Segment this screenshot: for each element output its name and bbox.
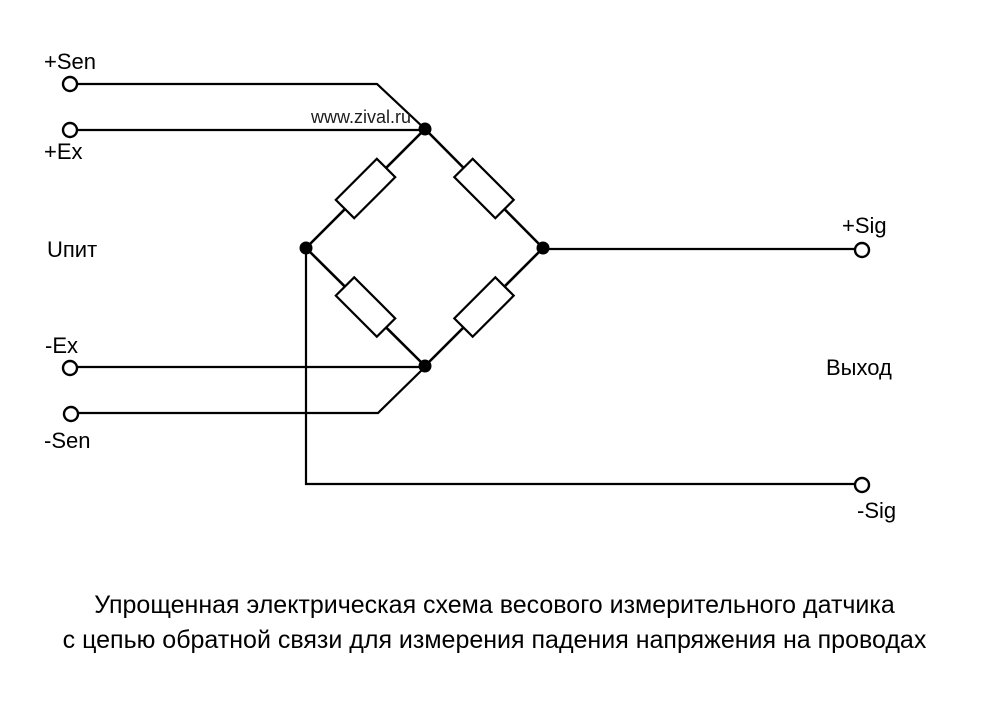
ex-plus-label: +Ex xyxy=(44,140,83,164)
resistor-bottom-right xyxy=(454,277,513,336)
terminal-sen-minus xyxy=(64,407,78,421)
resistor-bottom-left xyxy=(336,277,395,336)
supply-label: Uпит xyxy=(47,238,97,262)
caption: Упрощенная электрическая схема весового … xyxy=(0,588,989,658)
resistor-top-right xyxy=(454,159,513,218)
terminal-sig-minus xyxy=(855,478,869,492)
schematic-canvas: +Sen +Ex Uпит -Ex -Sen +Sig Выход -Sig w… xyxy=(0,0,989,703)
terminal-sen-plus xyxy=(63,77,77,91)
sen-minus-label: -Sen xyxy=(44,429,90,453)
sen-plus-label: +Sen xyxy=(44,50,96,74)
sig-plus-label: +Sig xyxy=(842,214,887,238)
wire-sen-minus xyxy=(78,367,425,413)
resistor-top-left xyxy=(336,159,395,218)
output-label: Выход xyxy=(826,356,892,380)
caption-line-1: Упрощенная электрическая схема весового … xyxy=(0,588,989,623)
node-left xyxy=(300,242,313,255)
node-top xyxy=(419,123,432,136)
ex-minus-label: -Ex xyxy=(45,334,78,358)
caption-line-2: с цепью обратной связи для измерения пад… xyxy=(0,623,989,658)
terminal-ex-minus xyxy=(63,361,77,375)
node-bottom xyxy=(419,360,432,373)
watermark-url: www.zival.ru xyxy=(0,108,411,126)
node-right xyxy=(537,242,550,255)
sig-minus-label: -Sig xyxy=(857,499,896,523)
terminal-sig-plus xyxy=(855,243,869,257)
